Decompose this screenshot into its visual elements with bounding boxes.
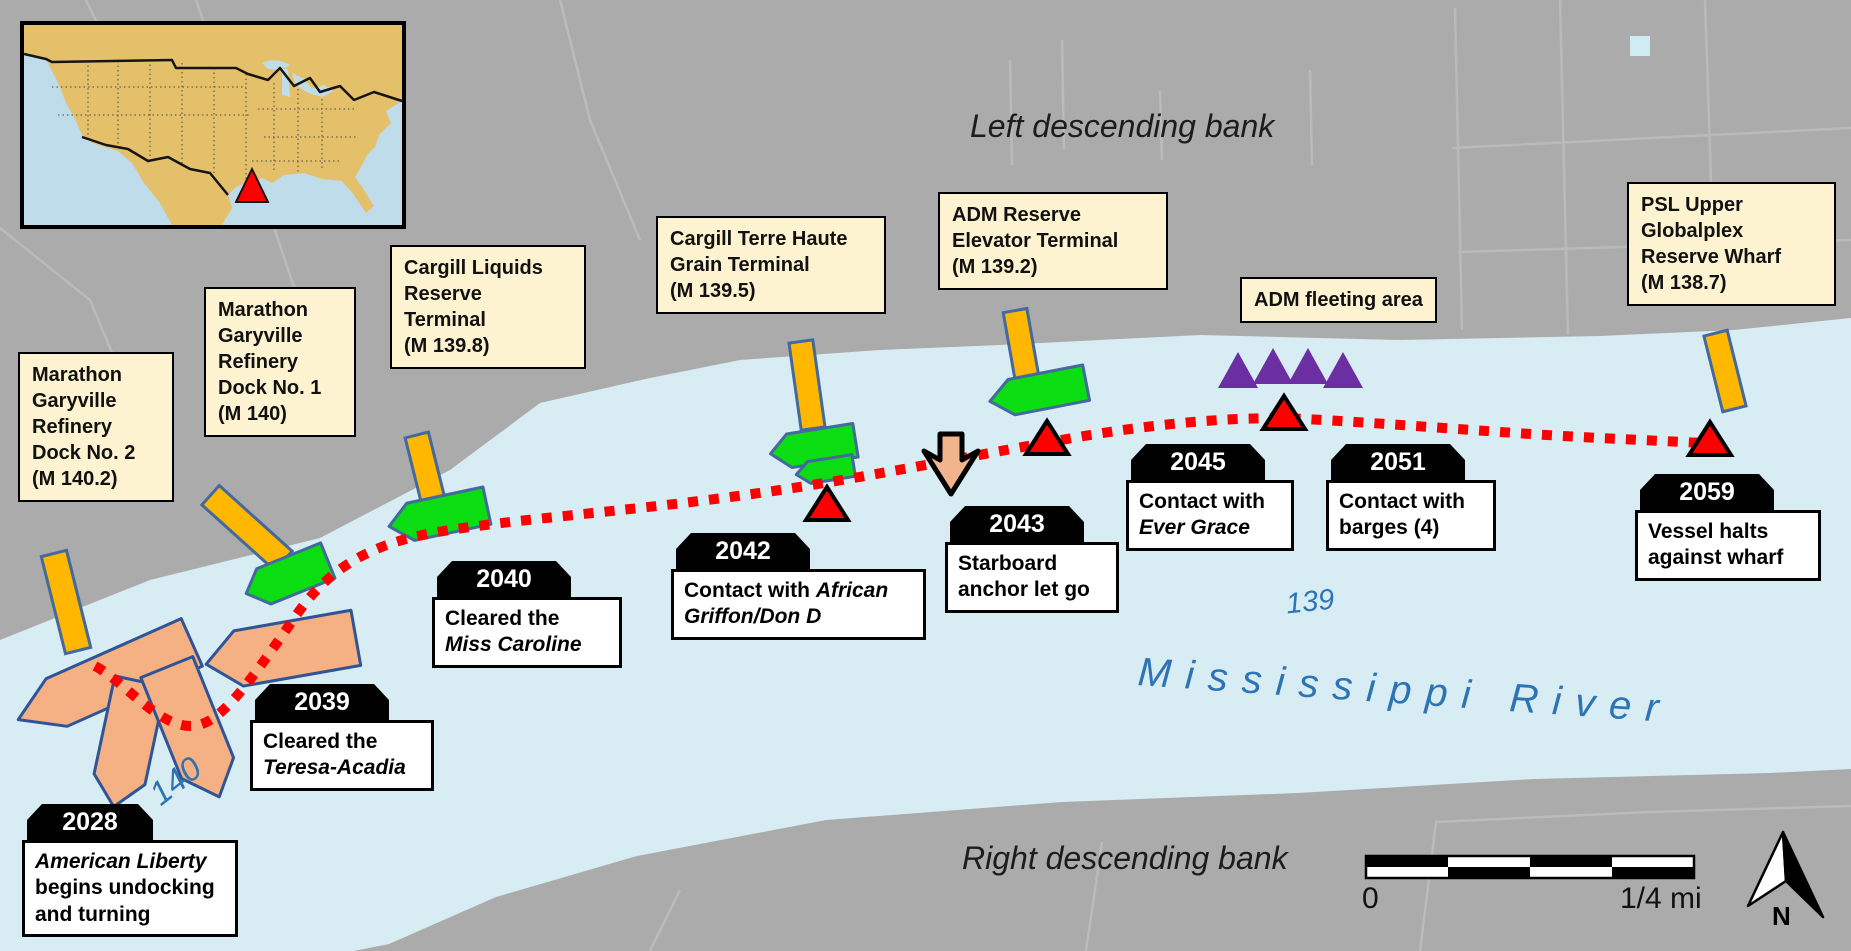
terminal-label-psl-globalplex: PSL Upper Globalplex Reserve Wharf (M 13… — [1627, 182, 1836, 306]
event-2040: 2040 Cleared the Miss Caroline — [432, 561, 622, 668]
event-time-tab: 2045 — [1131, 444, 1265, 480]
vessel-name: American Liberty — [35, 850, 207, 873]
event-text: Vessel halts against wharf — [1635, 510, 1821, 581]
event-time-tab: 2039 — [255, 684, 389, 720]
event-time-tab: 2042 — [676, 533, 810, 569]
vessel-name: Miss Caroline — [445, 633, 582, 656]
event-text: Contact with Ever Grace — [1126, 480, 1294, 551]
event-2043: 2043 Starboard anchor let go — [945, 506, 1119, 613]
terminal-label-adm-reserve: ADM Reserve Elevator Terminal (M 139.2) — [938, 192, 1168, 290]
left-bank-label: Left descending bank — [970, 108, 1274, 145]
event-text: Cleared the Teresa-Acadia — [250, 720, 434, 791]
vessel-name: Teresa-Acadia — [263, 756, 406, 779]
north-arrow-label: N — [1772, 901, 1791, 932]
event-time-tab: 2028 — [27, 804, 153, 840]
us-landmass — [24, 25, 402, 225]
inset-us-map — [20, 21, 406, 229]
event-time-tab: 2059 — [1640, 474, 1774, 510]
inset-us-map-drawing — [24, 25, 402, 225]
vessel-name: Ever Grace — [1139, 516, 1250, 539]
event-text: American Liberty begins undocking and tu… — [22, 840, 238, 937]
pond — [1630, 36, 1650, 56]
event-2059: 2059 Vessel halts against wharf — [1635, 474, 1821, 581]
terminal-label-cargill-liquids: Cargill Liquids Reserve Terminal (M 139.… — [390, 245, 586, 369]
terminal-label-cargill-terre-haute: Cargill Terre Haute Grain Terminal (M 13… — [656, 216, 886, 314]
incident-map: Left descending bank Right descending ba… — [0, 0, 1851, 951]
right-bank-label: Right descending bank — [962, 840, 1288, 877]
event-2028: 2028 American Liberty begins undocking a… — [22, 804, 238, 937]
event-time-tab: 2043 — [950, 506, 1084, 542]
event-2051: 2051 Contact with barges (4) — [1326, 444, 1496, 551]
terminal-label-marathon-dock-1: Marathon Garyville Refinery Dock No. 1 (… — [204, 287, 356, 437]
event-text: Starboard anchor let go — [945, 542, 1119, 613]
scale-start-label: 0 — [1362, 882, 1379, 916]
scale-bar — [1366, 856, 1694, 878]
terminal-label-adm-fleeting-area: ADM fleeting area — [1240, 277, 1437, 323]
event-text: Contact with barges (4) — [1326, 480, 1496, 551]
terminal-label-marathon-dock-2: Marathon Garyville Refinery Dock No. 2 (… — [18, 352, 174, 502]
event-text: Contact with African Griffon/Don D — [671, 569, 926, 640]
event-2042: 2042 Contact with African Griffon/Don D — [671, 533, 926, 640]
mile-marker-139: 139 — [1284, 584, 1336, 622]
event-time-tab: 2051 — [1331, 444, 1465, 480]
event-text: Cleared the Miss Caroline — [432, 597, 622, 668]
event-time-tab: 2040 — [437, 561, 571, 597]
event-2039: 2039 Cleared the Teresa-Acadia — [250, 684, 434, 791]
scale-end-label: 1/4 mi — [1620, 882, 1702, 916]
event-2045: 2045 Contact with Ever Grace — [1126, 444, 1294, 551]
